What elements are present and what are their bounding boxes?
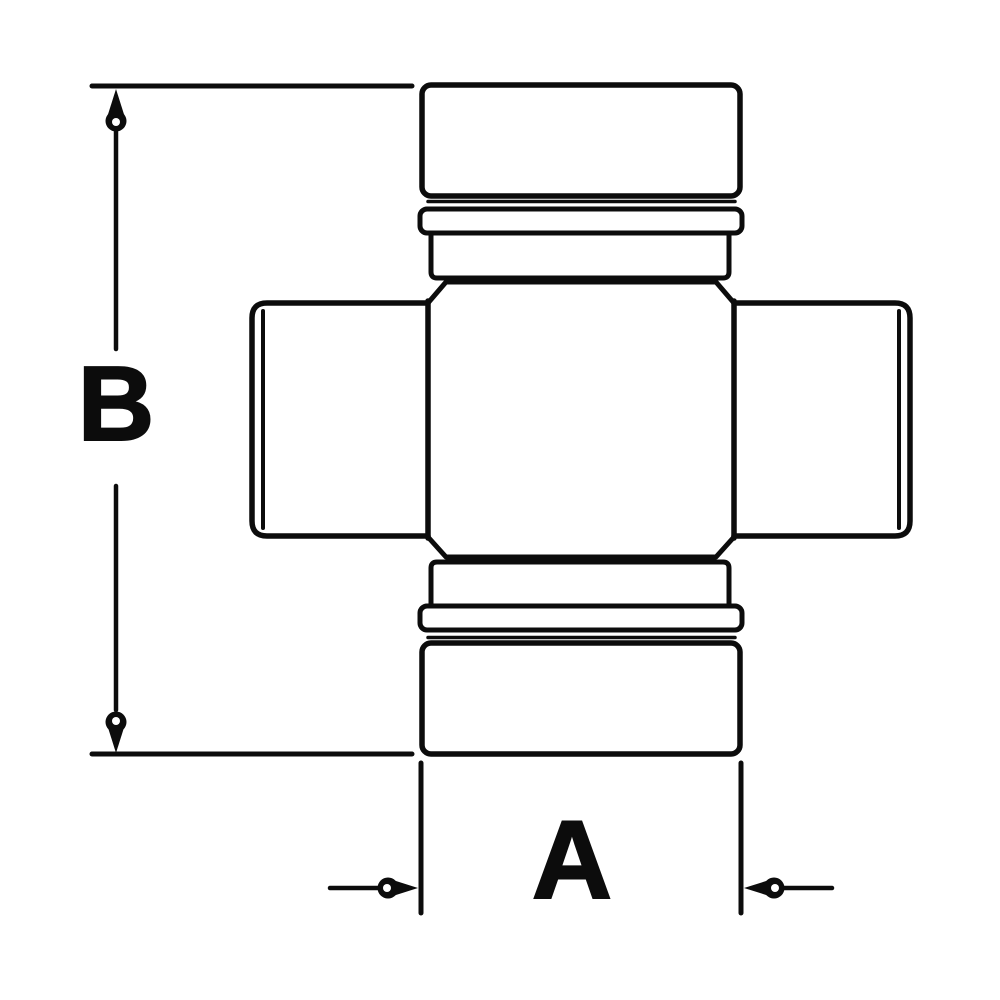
top-snap-ring-band — [420, 209, 742, 233]
dim-b-arrowhead-top — [106, 89, 127, 132]
dim-a-label: A — [532, 798, 612, 922]
u-joint-cross-technical-drawing: B A — [0, 0, 1000, 1000]
dim-a-arrowhead-left — [378, 878, 419, 899]
bottom-bearing-cap — [422, 643, 740, 754]
body-bottom-edge — [428, 537, 734, 557]
top-trunnion-base — [431, 233, 729, 278]
body-top-edge — [428, 282, 734, 303]
dim-b-label: B — [78, 345, 155, 463]
part-outline — [252, 85, 910, 754]
bottom-snap-ring-band — [420, 606, 742, 630]
dim-b-arrowhead-bottom — [106, 712, 127, 754]
left-bearing-cap — [252, 303, 428, 536]
top-bearing-cap — [422, 85, 740, 196]
dim-a-arrowhead-right — [744, 878, 785, 899]
right-bearing-cap — [734, 303, 910, 536]
diagram-canvas: B A — [0, 0, 1000, 1000]
bottom-trunnion-base — [431, 562, 729, 606]
